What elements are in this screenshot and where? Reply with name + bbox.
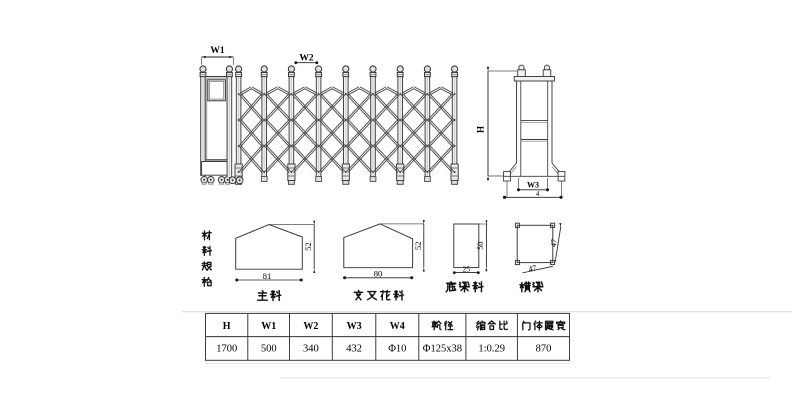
svg-text:H: H: [476, 126, 486, 133]
svg-text:W3: W3: [347, 321, 362, 332]
svg-text:340: 340: [303, 343, 319, 354]
svg-text:81: 81: [263, 271, 272, 281]
svg-text:Φ125x38: Φ125x38: [423, 343, 462, 354]
svg-text:W3: W3: [527, 181, 539, 190]
svg-text:52: 52: [413, 242, 423, 251]
svg-text:80: 80: [374, 268, 383, 278]
svg-text:W1: W1: [210, 46, 225, 56]
svg-text:432: 432: [346, 343, 362, 354]
svg-text:1:0.29: 1:0.29: [478, 343, 505, 354]
svg-text:W2: W2: [299, 54, 314, 64]
svg-text:25: 25: [463, 264, 471, 273]
svg-text:1700: 1700: [216, 343, 237, 354]
svg-text:870: 870: [536, 343, 552, 354]
svg-text:Φ10: Φ10: [388, 343, 406, 354]
svg-text:H: H: [223, 321, 231, 332]
svg-text:500: 500: [261, 343, 277, 354]
svg-text:4: 4: [536, 190, 540, 198]
svg-text:50: 50: [476, 242, 485, 250]
svg-text:47: 47: [549, 238, 559, 247]
svg-text:W2: W2: [303, 321, 318, 332]
svg-text:52: 52: [303, 242, 313, 251]
svg-text:W1: W1: [261, 321, 276, 332]
svg-text:W4: W4: [390, 321, 405, 332]
